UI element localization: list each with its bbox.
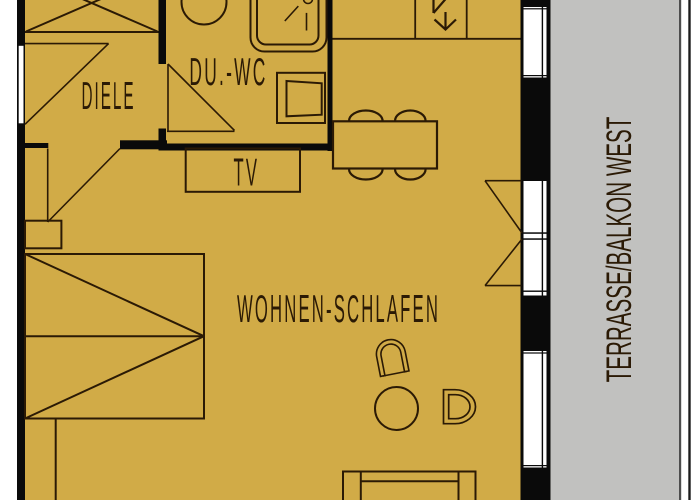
svg-text:WOHNEN-SCHLAFEN: WOHNEN-SCHLAFEN xyxy=(237,288,440,331)
svg-text:TERRASSE/BALKON WEST: TERRASSE/BALKON WEST xyxy=(601,117,640,383)
svg-text:DIELE: DIELE xyxy=(82,75,136,118)
svg-text:DU.-WC: DU.-WC xyxy=(189,51,267,94)
svg-text:TV: TV xyxy=(234,152,260,195)
